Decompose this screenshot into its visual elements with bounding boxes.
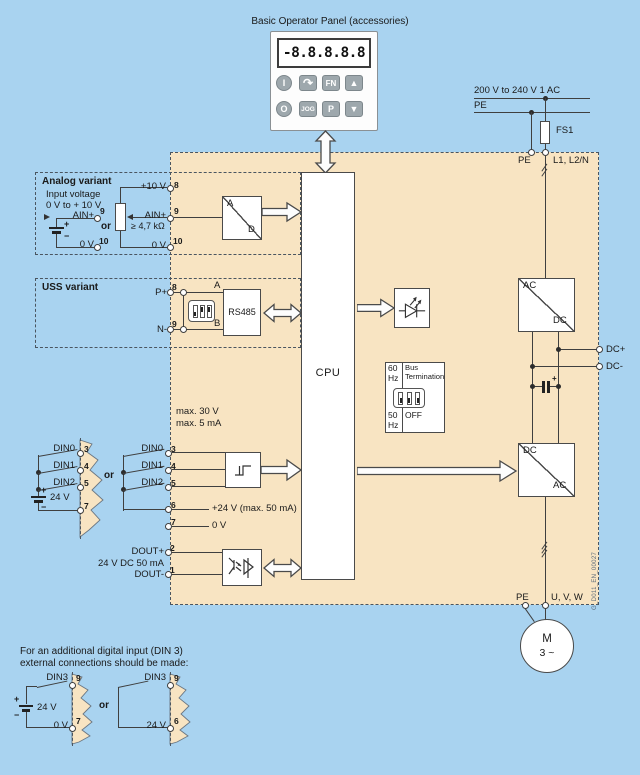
junction-dot — [556, 347, 561, 352]
schmitt-trigger-block — [225, 452, 261, 488]
cpu-led-arrow — [357, 297, 395, 319]
uss-p-label: P+ — [143, 288, 167, 299]
cpu-inverter-arrow — [357, 459, 518, 483]
ext-ain-pin: 9 — [100, 206, 105, 216]
wire — [172, 526, 209, 527]
bop-cpu-arrow — [314, 130, 337, 174]
din-max-current: max. 5 mA — [176, 419, 221, 430]
junction-dot — [556, 384, 561, 389]
battery-plus: + — [41, 485, 46, 495]
uss-n-terminal — [167, 326, 174, 333]
rs485-block: RS485 — [223, 289, 261, 336]
dip-switch-1 — [193, 305, 198, 318]
optocoupler-block — [222, 549, 262, 586]
wire — [172, 469, 225, 470]
din0-label: DIN0 — [48, 444, 75, 455]
fuse-fs1 — [540, 121, 550, 144]
din1-pin: 4 — [84, 461, 89, 471]
wire — [172, 552, 222, 553]
din3-terminal — [167, 682, 174, 689]
din0-terminal — [165, 450, 172, 457]
wire — [174, 217, 222, 218]
din-cpu-arrow — [261, 458, 302, 482]
mains-pe-label: PE — [474, 101, 487, 112]
wire — [123, 509, 165, 510]
battery-minus: − — [14, 710, 19, 720]
din1-label: DIN1 — [48, 461, 75, 472]
ext-zero-pin: 10 — [99, 236, 108, 246]
capacitor-plus: + — [552, 374, 557, 383]
din0-terminal — [77, 450, 84, 457]
battery-plate — [49, 227, 64, 229]
ext-zero-label: 0 V — [68, 240, 94, 251]
ext-ain-label: AIN+ — [68, 211, 94, 222]
dc-minus-terminal — [596, 363, 603, 370]
bop-fn-button: FN — [322, 75, 340, 91]
common-terminal — [77, 507, 84, 514]
adc-a-label: A — [227, 199, 233, 210]
fuse-label: FS1 — [556, 126, 573, 137]
dip-switch-1 — [398, 392, 403, 405]
wire — [183, 296, 184, 327]
optocoupler-icon — [226, 554, 258, 582]
p10v-pin: 8 — [174, 180, 179, 190]
p10v-terminal — [167, 185, 174, 192]
rs485-cpu-arrow — [263, 302, 302, 324]
bop-jog-button: JOG — [299, 101, 317, 117]
bop-down-button: ▼ — [345, 101, 363, 117]
dout-cpu-arrow — [263, 557, 302, 579]
terminal-l1-label: L1, L2/N — [553, 156, 589, 167]
battery-plate — [19, 705, 33, 707]
din3-terminal — [69, 682, 76, 689]
common-pin: 7 — [84, 501, 89, 511]
din3-or: or — [99, 700, 109, 712]
wire — [558, 349, 598, 350]
din2-label: DIN2 — [136, 478, 163, 489]
bop-off-button: O — [276, 101, 292, 117]
analog-or: or — [101, 221, 111, 233]
uss-p-branch-terminal — [180, 289, 187, 296]
wire — [26, 712, 27, 728]
wire — [118, 687, 119, 728]
schmitt-trigger-icon — [234, 464, 252, 477]
drawing-id-watermark: G_D011_EN_00027 — [592, 538, 598, 610]
wire — [120, 231, 121, 248]
analog-title: Analog variant — [42, 176, 111, 188]
din1-terminal — [165, 467, 172, 474]
dout-plus-label: DOUT+ — [126, 547, 164, 558]
din1-terminal — [77, 467, 84, 474]
led-block — [394, 288, 430, 328]
output-uvw-label: U, V, W — [551, 593, 583, 604]
wire — [123, 455, 124, 511]
wire — [120, 188, 121, 203]
din1-label: DIN1 — [136, 461, 163, 472]
battery-plus: + — [14, 694, 19, 704]
bus-termination-label: Bus Termination — [405, 364, 444, 381]
din2-label: DIN2 — [48, 478, 75, 489]
freq-60hz-label: 60 Hz — [388, 364, 398, 384]
motor-pe-wire — [524, 608, 534, 622]
dout-minus-terminal — [165, 571, 172, 578]
bop-up-button: ▲ — [345, 75, 363, 91]
din3-pin: 9 — [76, 673, 81, 683]
wire — [474, 98, 590, 99]
bop-display: -8.8.8.8.8 — [277, 38, 371, 68]
zero-v-terminal — [69, 725, 76, 732]
bop-title: Basic Operator Panel (accessories) — [230, 16, 430, 28]
dc-minus-label: DC- — [606, 362, 623, 373]
dc-plus-terminal — [596, 346, 603, 353]
pointer-arrow — [44, 214, 50, 220]
inverter-ac-label: AC — [553, 481, 566, 492]
uss-p-terminal — [167, 289, 174, 296]
din2-terminal — [77, 484, 84, 491]
wire — [545, 156, 546, 278]
capacitor-plate — [542, 381, 545, 393]
dip-switch-2 — [200, 305, 205, 318]
wiring-diagram: Basic Operator Panel (accessories) -8.8.… — [0, 0, 640, 775]
junction-dot — [530, 364, 535, 369]
din3-pin: 9 — [174, 673, 179, 683]
v24-label: 24 V — [138, 721, 166, 732]
wire — [38, 510, 80, 511]
din0-label: DIN0 — [136, 444, 163, 455]
potentiometer — [115, 203, 126, 231]
din2-pin: 5 — [84, 478, 89, 488]
uss-dip-switch — [188, 300, 215, 322]
motor-phase-label: 3 ~ — [540, 647, 555, 660]
dout-minus-label: DOUT- — [126, 570, 164, 581]
din2-terminal — [165, 484, 172, 491]
din-max-voltage: max. 30 V — [176, 407, 219, 418]
ext-zero-terminal — [94, 244, 101, 251]
wire — [26, 686, 37, 687]
ain-label: AIN+ — [139, 211, 166, 222]
wire — [26, 687, 27, 704]
rs485-b-label: B — [214, 319, 220, 330]
cpu-label: CPU — [302, 367, 354, 380]
rectifier-dc-label: DC — [553, 316, 567, 327]
wire — [532, 366, 598, 367]
junction-dot — [530, 384, 535, 389]
zero-v-pin: 10 — [173, 236, 182, 246]
din3-label: DIN3 — [40, 673, 68, 684]
din3-note-line1: For an additional digital input (DIN 3) — [20, 646, 183, 658]
uss-title: USS variant — [42, 282, 98, 294]
mains-voltage-label: 200 V to 240 V 1 AC — [474, 86, 560, 97]
ext-ain-terminal — [94, 215, 101, 222]
uss-n-label: N- — [143, 325, 167, 336]
wire — [172, 486, 225, 487]
battery-plate — [52, 231, 61, 234]
dout-plus-terminal — [165, 549, 172, 556]
cpu-block: CPU — [301, 172, 355, 580]
wire — [172, 574, 222, 575]
zero-v-label: 0 V — [46, 721, 68, 732]
wire — [531, 112, 532, 152]
resistor-rating: ≥ 4,7 kΩ — [131, 221, 165, 231]
off-label: OFF — [405, 411, 422, 421]
wire — [172, 452, 225, 453]
dip-switch-3 — [207, 305, 212, 318]
v24-terminal — [167, 725, 174, 732]
led-icon — [397, 293, 427, 323]
bop-reverse-button: ↷ — [299, 75, 317, 91]
bop-p-button: P — [322, 101, 340, 117]
p10v-label: +10 V — [139, 182, 166, 193]
ain-pin: 9 — [174, 206, 179, 216]
zero-v-label: 0 V — [139, 241, 166, 252]
zero-v-terminal — [167, 244, 174, 251]
dip-switch-2 — [407, 392, 412, 405]
dip-switch-3 — [415, 392, 420, 405]
din0-pin: 3 — [84, 444, 89, 454]
potentiometer-wiper — [127, 214, 133, 220]
adc-cpu-arrow — [262, 201, 302, 223]
motor: M 3 ~ — [520, 619, 574, 673]
dc-plus-label: DC+ — [606, 345, 625, 356]
inverter-dc-label: DC — [523, 446, 537, 457]
freq-50hz-label: 50 Hz — [388, 411, 398, 431]
din-or: or — [104, 470, 114, 482]
zero-v-pin: 7 — [76, 716, 81, 726]
battery-plate — [31, 496, 46, 498]
p24v-label: +24 V (max. 50 mA) — [212, 504, 297, 515]
rs485-label: RS485 — [228, 307, 256, 317]
terminal-l1 — [542, 149, 549, 156]
motor-m-label: M — [542, 633, 552, 647]
din3-note-line2: external connections should be made: — [20, 658, 188, 670]
rs485-a-label: A — [214, 281, 220, 292]
adc-d-label: D — [248, 225, 255, 236]
bus-termination-dip-switch — [393, 388, 425, 408]
din3-label: DIN3 — [138, 673, 166, 684]
terminal-pe-top-label: PE — [518, 156, 531, 167]
v24-pin: 6 — [174, 716, 179, 726]
battery-voltage: 24 V — [37, 703, 57, 714]
ain-terminal — [167, 215, 174, 222]
zero-v-out-label: 0 V — [212, 521, 226, 532]
bop-on-button: I — [276, 75, 292, 91]
rectifier-ac-label: AC — [523, 281, 536, 292]
wire — [172, 509, 209, 510]
wire — [56, 234, 57, 248]
uss-n-branch-terminal — [180, 326, 187, 333]
battery-voltage: 24 V — [50, 493, 70, 504]
